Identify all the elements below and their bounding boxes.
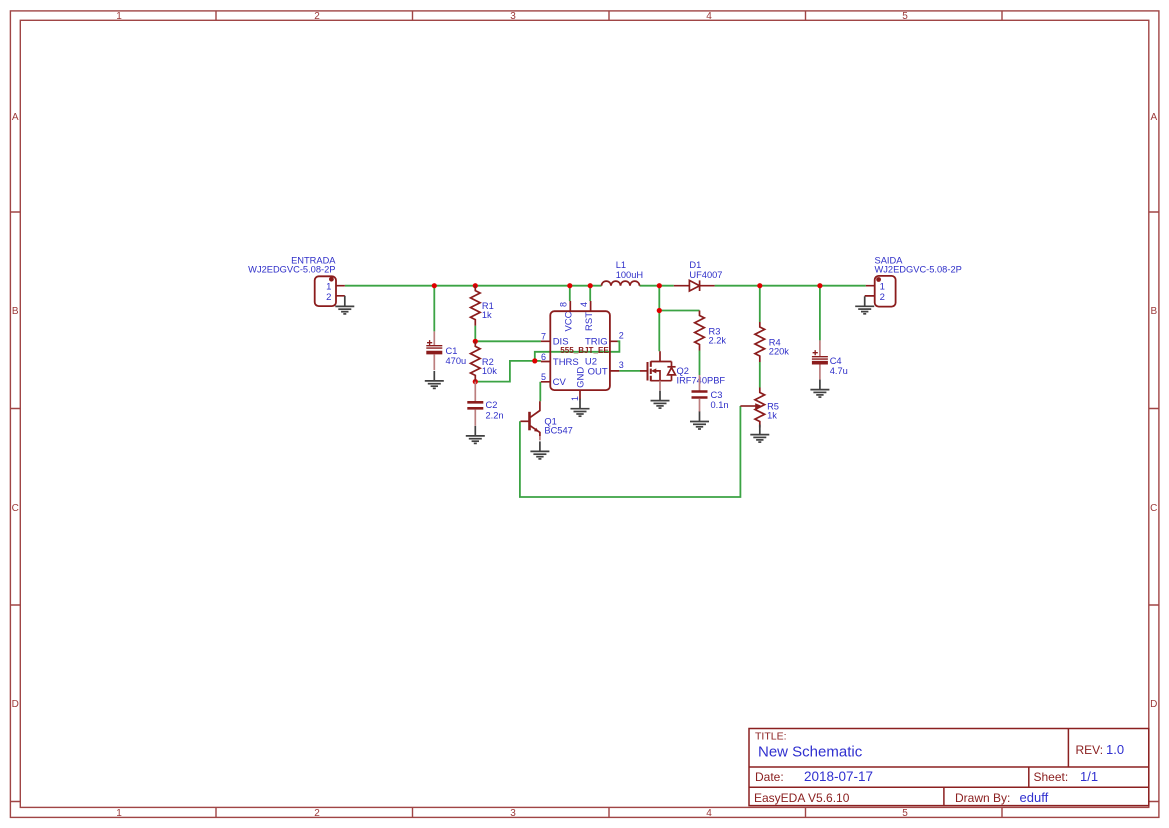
svg-text:1/1: 1/1 [1080, 769, 1098, 784]
svg-text:WJ2EDGVC-5.08-2P: WJ2EDGVC-5.08-2P [875, 264, 962, 274]
svg-text:10k: 10k [482, 366, 497, 376]
svg-text:7: 7 [541, 332, 546, 342]
svg-text:Drawn By:: Drawn By: [955, 791, 1010, 805]
svg-text:220k: 220k [769, 347, 790, 357]
svg-text:OUT: OUT [588, 366, 608, 377]
svg-text:Date:: Date: [755, 770, 784, 784]
svg-text:BC547: BC547 [544, 426, 572, 436]
svg-text:2: 2 [326, 292, 331, 303]
svg-text:4: 4 [706, 808, 712, 819]
svg-text:eduff: eduff [1020, 790, 1049, 805]
svg-text:2: 2 [880, 292, 885, 303]
svg-text:3: 3 [510, 11, 516, 22]
svg-text:2: 2 [314, 808, 320, 819]
svg-text:2: 2 [619, 331, 624, 341]
svg-text:1: 1 [326, 281, 331, 292]
svg-text:VCC: VCC [564, 311, 575, 331]
svg-text:470u: 470u [446, 356, 467, 366]
svg-text:TITLE:: TITLE: [755, 731, 787, 743]
svg-text:6: 6 [541, 352, 546, 362]
svg-text:C2: C2 [486, 400, 498, 410]
svg-text:C: C [12, 503, 19, 514]
svg-text:A: A [12, 112, 19, 123]
svg-text:THRS: THRS [553, 357, 579, 368]
svg-text:1: 1 [880, 281, 885, 292]
svg-text:L1: L1 [616, 260, 626, 270]
svg-text:REV:: REV: [1076, 743, 1104, 757]
svg-text:5: 5 [902, 808, 908, 819]
svg-text:D1: D1 [689, 260, 701, 270]
svg-text:3: 3 [510, 808, 516, 819]
svg-text:B: B [1150, 306, 1157, 317]
svg-text:EasyEDA V5.6.10: EasyEDA V5.6.10 [754, 791, 850, 805]
svg-text:New Schematic: New Schematic [758, 744, 863, 761]
svg-text:100uH: 100uH [616, 270, 643, 280]
svg-text:C1: C1 [446, 346, 458, 356]
svg-text:2: 2 [314, 11, 320, 22]
svg-text:5: 5 [902, 11, 908, 22]
svg-text:1k: 1k [767, 411, 777, 421]
svg-text:1.0: 1.0 [1106, 742, 1124, 757]
svg-text:WJ2EDGVC-5.08-2P: WJ2EDGVC-5.08-2P [248, 264, 335, 274]
svg-text:Sheet:: Sheet: [1034, 770, 1069, 784]
svg-text:IRF740PBF: IRF740PBF [677, 375, 726, 385]
svg-text:1k: 1k [482, 310, 492, 320]
svg-text:D: D [1150, 699, 1157, 710]
svg-text:RST: RST [584, 312, 595, 331]
svg-text:1: 1 [116, 11, 122, 22]
svg-text:CV: CV [553, 377, 567, 388]
svg-text:2.2k: 2.2k [709, 336, 727, 346]
svg-text:C3: C3 [711, 390, 723, 400]
svg-text:D: D [12, 699, 19, 710]
svg-text:0.1n: 0.1n [711, 400, 729, 410]
svg-text:5: 5 [541, 372, 546, 382]
svg-text:B: B [12, 306, 19, 317]
svg-text:C4: C4 [830, 356, 842, 366]
svg-text:4: 4 [579, 302, 589, 307]
svg-text:U2: U2 [585, 357, 597, 368]
svg-text:8: 8 [559, 302, 569, 307]
svg-text:3: 3 [619, 360, 624, 370]
svg-text:C: C [1150, 503, 1157, 514]
svg-text:2.2n: 2.2n [486, 410, 504, 420]
svg-text:1: 1 [116, 808, 122, 819]
svg-text:UF4007: UF4007 [689, 270, 722, 280]
svg-text:1: 1 [570, 396, 580, 401]
svg-text:4.7u: 4.7u [830, 366, 848, 376]
svg-text:2018-07-17: 2018-07-17 [804, 769, 873, 784]
svg-text:4: 4 [706, 11, 712, 22]
svg-text:GND: GND [575, 367, 586, 388]
svg-text:A: A [1150, 112, 1157, 123]
svg-text:555_BJT_EE: 555_BJT_EE [560, 346, 609, 355]
